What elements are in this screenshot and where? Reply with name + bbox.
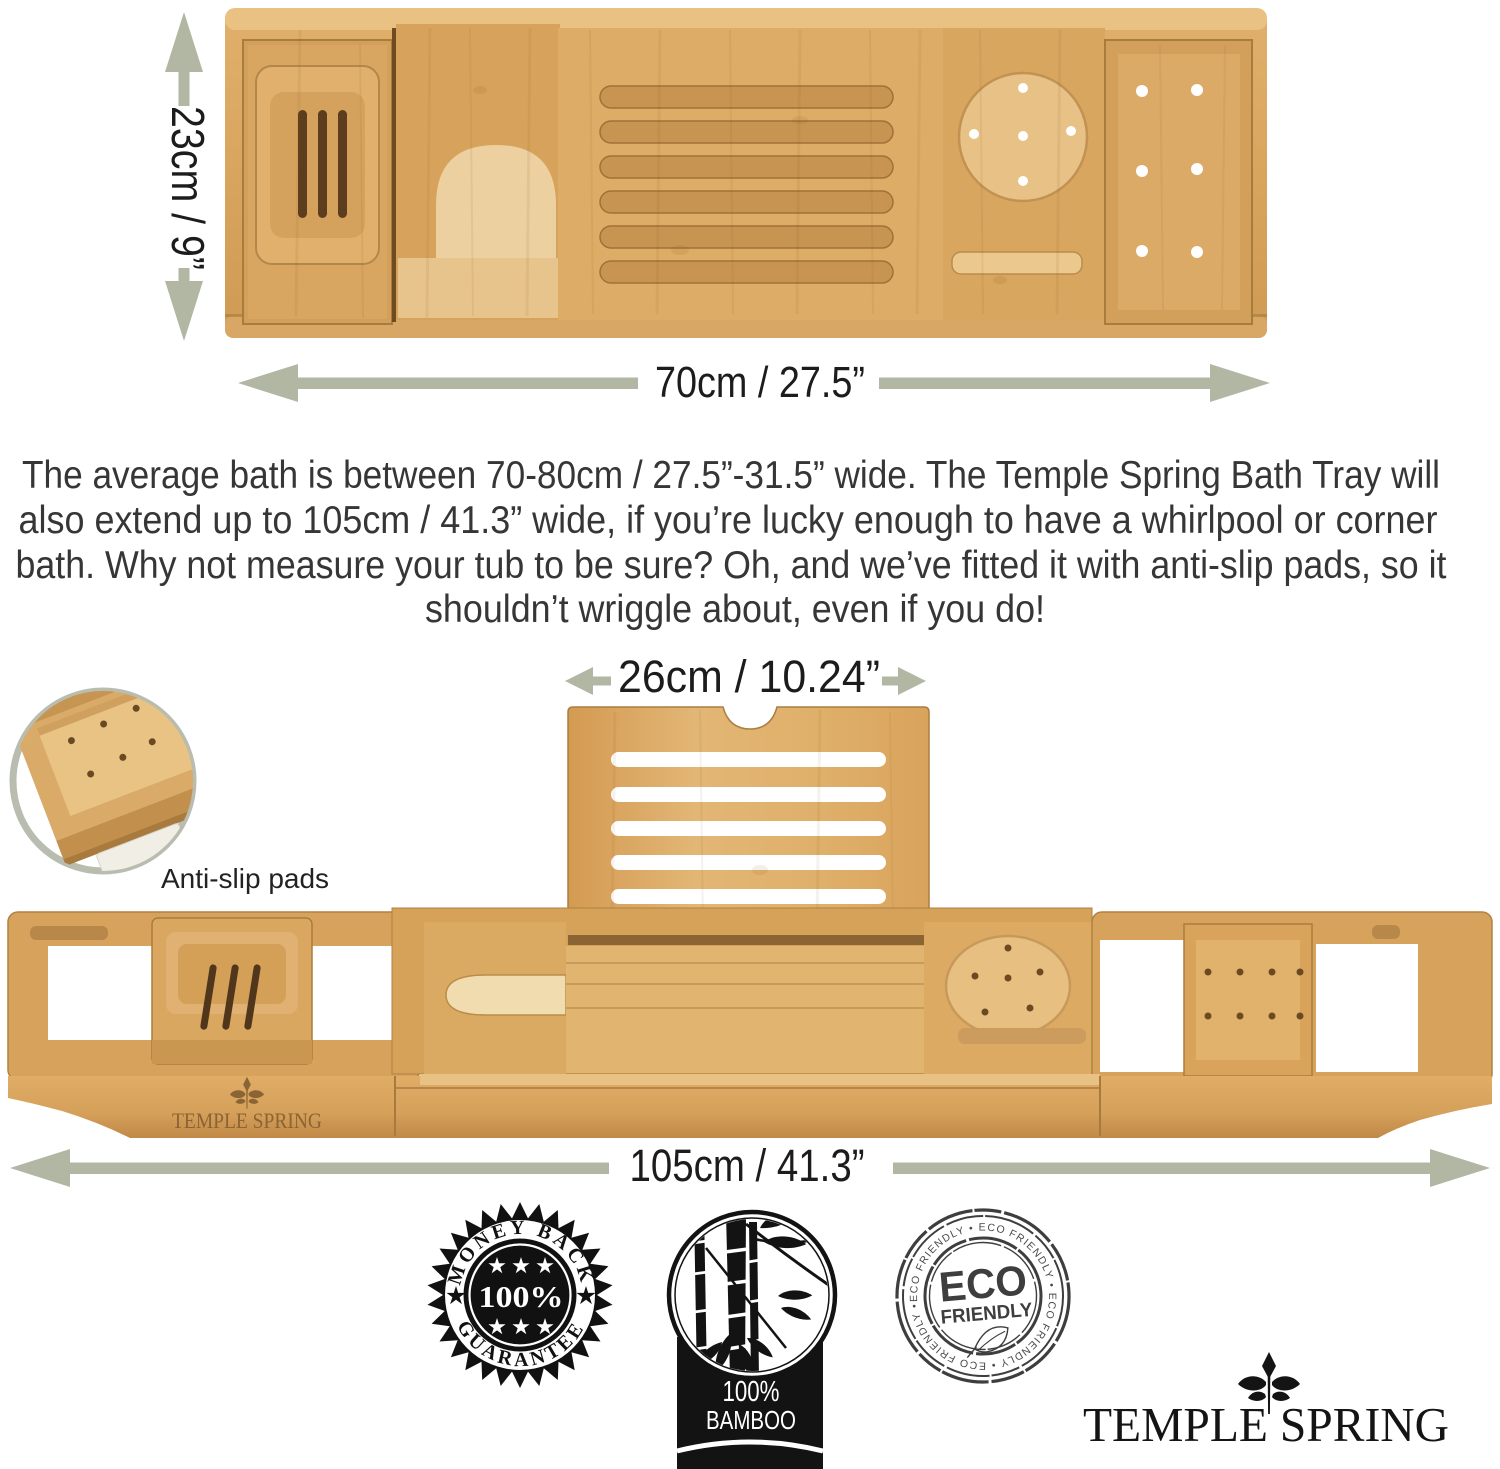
- svg-text:Anti-slip pads: Anti-slip pads: [161, 863, 329, 894]
- svg-text:23cm / 9”: 23cm / 9”: [162, 106, 214, 270]
- svg-text:70cm / 27.5”: 70cm / 27.5”: [655, 358, 865, 407]
- svg-text:TEMPLE SPRING: TEMPLE SPRING: [172, 1108, 322, 1133]
- svg-text:The average bath is between 70: The average bath is between 70-80cm / 27…: [22, 454, 1440, 497]
- svg-text:105cm / 41.3”: 105cm / 41.3”: [630, 1140, 865, 1191]
- svg-text:TEMPLE SPRING: TEMPLE SPRING: [1083, 1397, 1449, 1452]
- svg-text:100%: 100%: [479, 1279, 564, 1314]
- svg-text:shouldn’t wriggle about, even: shouldn’t wriggle about, even if you do!: [425, 588, 1045, 631]
- svg-text:bath. Why not measure your tub: bath. Why not measure your tub to be sur…: [16, 544, 1447, 587]
- svg-text:also extend up to 105cm / 41.3: also extend up to 105cm / 41.3” wide, if…: [19, 499, 1438, 542]
- svg-text:26cm / 10.24”: 26cm / 10.24”: [618, 651, 880, 702]
- svg-text:BAMBOO: BAMBOO: [706, 1405, 796, 1435]
- svg-text:100%: 100%: [723, 1376, 780, 1408]
